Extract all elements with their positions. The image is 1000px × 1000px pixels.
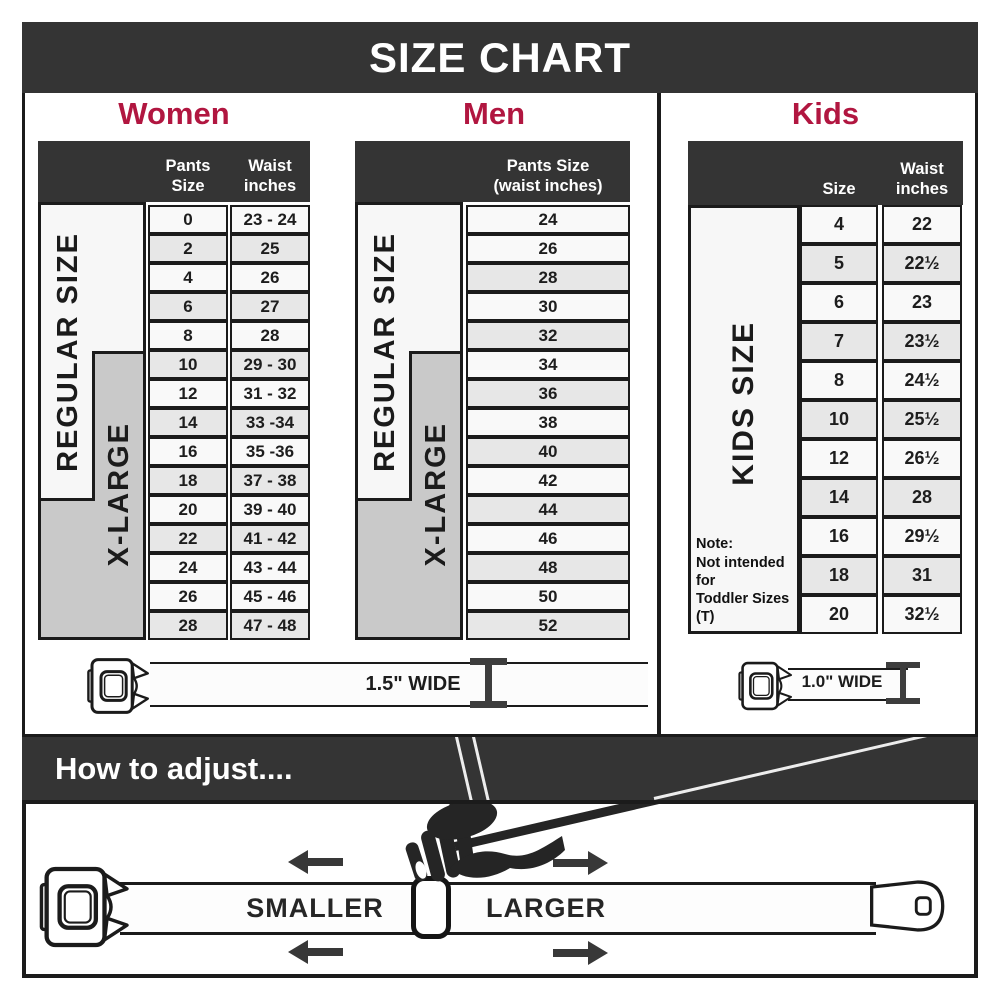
strap-end-line-2 xyxy=(472,737,490,800)
table-cell-waist: 41 - 42 xyxy=(230,524,310,553)
table-cell-waist: 32½ xyxy=(882,595,962,634)
table-cell-size: 12 xyxy=(800,439,878,478)
kids-size-header: Size xyxy=(800,179,878,200)
table-cell-size: 0 xyxy=(148,205,228,234)
table-cell-waist: 27 xyxy=(230,292,310,321)
table-cell-waist: 22½ xyxy=(882,244,962,283)
table-row: 30 xyxy=(466,292,630,321)
table-row: 522½ xyxy=(800,244,962,283)
kids-section-heading: Kids xyxy=(688,96,963,132)
table-cell-size: 18 xyxy=(800,556,878,595)
men-regular-size-zone: REGULAR SIZE xyxy=(358,205,412,498)
women-regular-size-zone: REGULAR SIZE xyxy=(41,205,95,498)
table-cell-size: 30 xyxy=(466,292,630,321)
table-cell-size: 4 xyxy=(800,205,878,244)
men-regular-size-label: REGULAR SIZE xyxy=(369,232,402,472)
table-cell-size: 16 xyxy=(800,517,878,556)
table-row: 44 xyxy=(466,495,630,524)
table-cell-size: 16 xyxy=(148,437,228,466)
table-row: 1025½ xyxy=(800,400,962,439)
strap-end-line-1 xyxy=(455,737,473,800)
women-size-table: 023 - 242254266278281029 - 301231 - 3214… xyxy=(148,205,310,640)
table-cell-size: 7 xyxy=(800,322,878,361)
table-row: 46 xyxy=(466,524,630,553)
men-size-category-area: REGULAR SIZE X-LARGE xyxy=(355,202,463,640)
larger-direction-label: LARGER xyxy=(478,893,614,923)
table-row: 623 xyxy=(800,283,962,322)
size-chart-banner: SIZE CHART xyxy=(22,22,978,93)
kids-width-marker-bottom xyxy=(886,698,920,704)
table-row: 1029 - 30 xyxy=(148,350,310,379)
table-cell-size: 50 xyxy=(466,582,630,611)
table-cell-size: 44 xyxy=(466,495,630,524)
table-cell-waist: 23 - 24 xyxy=(230,205,310,234)
belt-size-chart-infographic: SIZE CHART Women Men Kids Pants Size Wai… xyxy=(0,0,1000,1000)
table-cell-waist: 23½ xyxy=(882,322,962,361)
how-to-adjust-banner: How to adjust.... xyxy=(22,737,978,800)
table-cell-size: 48 xyxy=(466,553,630,582)
table-cell-waist: 35 -36 xyxy=(230,437,310,466)
table-cell-waist: 25 xyxy=(230,234,310,263)
table-cell-waist: 23 xyxy=(882,283,962,322)
table-cell-size: 26 xyxy=(148,582,228,611)
adult-belt-width-label: 1.5" WIDE xyxy=(347,673,479,696)
kids-note-line1: Not intended for xyxy=(696,554,800,590)
women-xlarge-label: X-LARGE xyxy=(103,422,136,567)
women-section-heading: Women xyxy=(38,96,310,132)
men-xlarge-zone-bg-ext xyxy=(358,498,412,637)
table-cell-waist: 37 - 38 xyxy=(230,466,310,495)
women-xlarge-zone-bg-ext xyxy=(41,498,95,637)
table-row: 48 xyxy=(466,553,630,582)
table-row: 828 xyxy=(148,321,310,350)
table-cell-size: 6 xyxy=(800,283,878,322)
table-row: 225 xyxy=(148,234,310,263)
table-row: 1629½ xyxy=(800,517,962,556)
table-cell-size: 40 xyxy=(466,437,630,466)
adult-seatbelt-buckle-icon xyxy=(86,656,152,716)
table-row: 38 xyxy=(466,408,630,437)
women-xlarge-zone: X-LARGE xyxy=(95,351,143,637)
table-cell-size: 2 xyxy=(148,234,228,263)
table-row: 40 xyxy=(466,437,630,466)
table-cell-waist: 26 xyxy=(230,263,310,292)
belt-tip-icon xyxy=(870,876,946,936)
table-row: 52 xyxy=(466,611,630,640)
table-row: 2847 - 48 xyxy=(148,611,310,640)
table-row: 023 - 24 xyxy=(148,205,310,234)
table-cell-waist: 33 -34 xyxy=(230,408,310,437)
men-kids-divider xyxy=(657,93,661,737)
table-cell-size: 18 xyxy=(148,466,228,495)
table-cell-waist: 24½ xyxy=(882,361,962,400)
table-row: 1837 - 38 xyxy=(148,466,310,495)
table-cell-size: 28 xyxy=(148,611,228,640)
table-cell-waist: 45 - 46 xyxy=(230,582,310,611)
table-cell-size: 46 xyxy=(466,524,630,553)
kids-table-header: Size Waist inches xyxy=(688,141,963,205)
men-xlarge-label: X-LARGE xyxy=(420,422,453,567)
kids-size-label: KIDS SIZE xyxy=(727,321,761,486)
table-cell-size: 36 xyxy=(466,379,630,408)
women-pants-size-header: Pants Size xyxy=(148,156,228,197)
men-section-heading: Men xyxy=(358,96,630,132)
table-cell-size: 14 xyxy=(800,478,878,517)
table-cell-size: 24 xyxy=(148,553,228,582)
women-waist-header: Waist inches xyxy=(230,156,310,197)
table-row: 2039 - 40 xyxy=(148,495,310,524)
men-xlarge-zone: X-LARGE xyxy=(412,351,460,637)
table-cell-waist: 29½ xyxy=(882,517,962,556)
table-row: 36 xyxy=(466,379,630,408)
table-cell-size: 20 xyxy=(148,495,228,524)
table-cell-waist: 43 - 44 xyxy=(230,553,310,582)
men-size-table: 242628303234363840424446485052 xyxy=(466,205,630,640)
kids-belt-width-label: 1.0" WIDE xyxy=(792,672,892,692)
kids-note-title: Note: xyxy=(696,535,800,553)
table-cell-size: 4 xyxy=(148,263,228,292)
adjust-illustration-box: SMALLER LARGER xyxy=(22,800,978,978)
page-title: SIZE CHART xyxy=(369,34,631,82)
arrow-right-icon xyxy=(553,941,608,965)
kids-note-line2: Toddler Sizes (T) xyxy=(696,590,800,626)
smaller-direction-label: SMALLER xyxy=(230,893,400,923)
table-row: 24 xyxy=(466,205,630,234)
women-table-header: Pants Size Waist inches xyxy=(38,141,310,202)
men-pants-size-header: Pants Size (waist inches) xyxy=(466,156,630,197)
table-cell-size: 26 xyxy=(466,234,630,263)
kids-size-zone: KIDS SIZE xyxy=(691,223,797,583)
table-cell-size: 8 xyxy=(800,361,878,400)
table-cell-size: 32 xyxy=(466,321,630,350)
table-row: 32 xyxy=(466,321,630,350)
pulled-strap-line-over-banner xyxy=(654,737,976,800)
table-cell-waist: 25½ xyxy=(882,400,962,439)
table-cell-size: 22 xyxy=(148,524,228,553)
table-cell-waist: 28 xyxy=(230,321,310,350)
kids-width-marker-bar xyxy=(900,668,906,699)
table-row: 2032½ xyxy=(800,595,962,634)
table-cell-size: 34 xyxy=(466,350,630,379)
table-row: 50 xyxy=(466,582,630,611)
kids-size-table: 422522½623723½824½1025½1226½14281629½183… xyxy=(800,205,962,634)
kids-waist-header: Waist inches xyxy=(882,159,962,200)
table-row: 2241 - 42 xyxy=(148,524,310,553)
adult-width-marker-bottom xyxy=(470,701,507,708)
table-cell-size: 52 xyxy=(466,611,630,640)
table-row: 26 xyxy=(466,234,630,263)
table-row: 28 xyxy=(466,263,630,292)
table-cell-size: 24 xyxy=(466,205,630,234)
table-cell-size: 10 xyxy=(148,350,228,379)
table-row: 1231 - 32 xyxy=(148,379,310,408)
table-cell-waist: 28 xyxy=(882,478,962,517)
women-regular-size-label: REGULAR SIZE xyxy=(52,232,85,472)
table-cell-size: 20 xyxy=(800,595,878,634)
table-row: 627 xyxy=(148,292,310,321)
table-cell-waist: 39 - 40 xyxy=(230,495,310,524)
table-row: 42 xyxy=(466,466,630,495)
table-cell-waist: 29 - 30 xyxy=(230,350,310,379)
table-row: 34 xyxy=(466,350,630,379)
table-cell-waist: 31 - 32 xyxy=(230,379,310,408)
table-cell-size: 5 xyxy=(800,244,878,283)
table-cell-size: 8 xyxy=(148,321,228,350)
how-to-adjust-title: How to adjust.... xyxy=(55,751,293,787)
table-cell-waist: 47 - 48 xyxy=(230,611,310,640)
women-size-category-area: REGULAR SIZE X-LARGE xyxy=(38,202,146,640)
arrow-left-icon xyxy=(288,940,343,964)
table-cell-size: 38 xyxy=(466,408,630,437)
table-row: 1433 -34 xyxy=(148,408,310,437)
table-cell-size: 14 xyxy=(148,408,228,437)
table-cell-size: 12 xyxy=(148,379,228,408)
kids-seatbelt-buckle-icon xyxy=(737,661,795,711)
table-cell-size: 10 xyxy=(800,400,878,439)
table-row: 422 xyxy=(800,205,962,244)
table-row: 723½ xyxy=(800,322,962,361)
kids-size-category-area: KIDS SIZE Note: Not intended for Toddler… xyxy=(688,205,800,634)
adjust-seatbelt-buckle-icon xyxy=(38,864,133,950)
table-row: 1428 xyxy=(800,478,962,517)
arrow-left-icon xyxy=(288,850,343,874)
table-row: 1635 -36 xyxy=(148,437,310,466)
table-row: 824½ xyxy=(800,361,962,400)
table-cell-waist: 22 xyxy=(882,205,962,244)
table-row: 426 xyxy=(148,263,310,292)
men-table-header: Pants Size (waist inches) xyxy=(355,141,630,202)
table-cell-size: 6 xyxy=(148,292,228,321)
table-row: 2645 - 46 xyxy=(148,582,310,611)
table-cell-size: 42 xyxy=(466,466,630,495)
table-row: 1831 xyxy=(800,556,962,595)
table-cell-waist: 31 xyxy=(882,556,962,595)
table-cell-size: 28 xyxy=(466,263,630,292)
hand-pulling-strap-icon xyxy=(390,800,565,890)
table-cell-waist: 26½ xyxy=(882,439,962,478)
table-row: 2443 - 44 xyxy=(148,553,310,582)
kids-note: Note: Not intended for Toddler Sizes (T) xyxy=(696,535,800,626)
table-row: 1226½ xyxy=(800,439,962,478)
